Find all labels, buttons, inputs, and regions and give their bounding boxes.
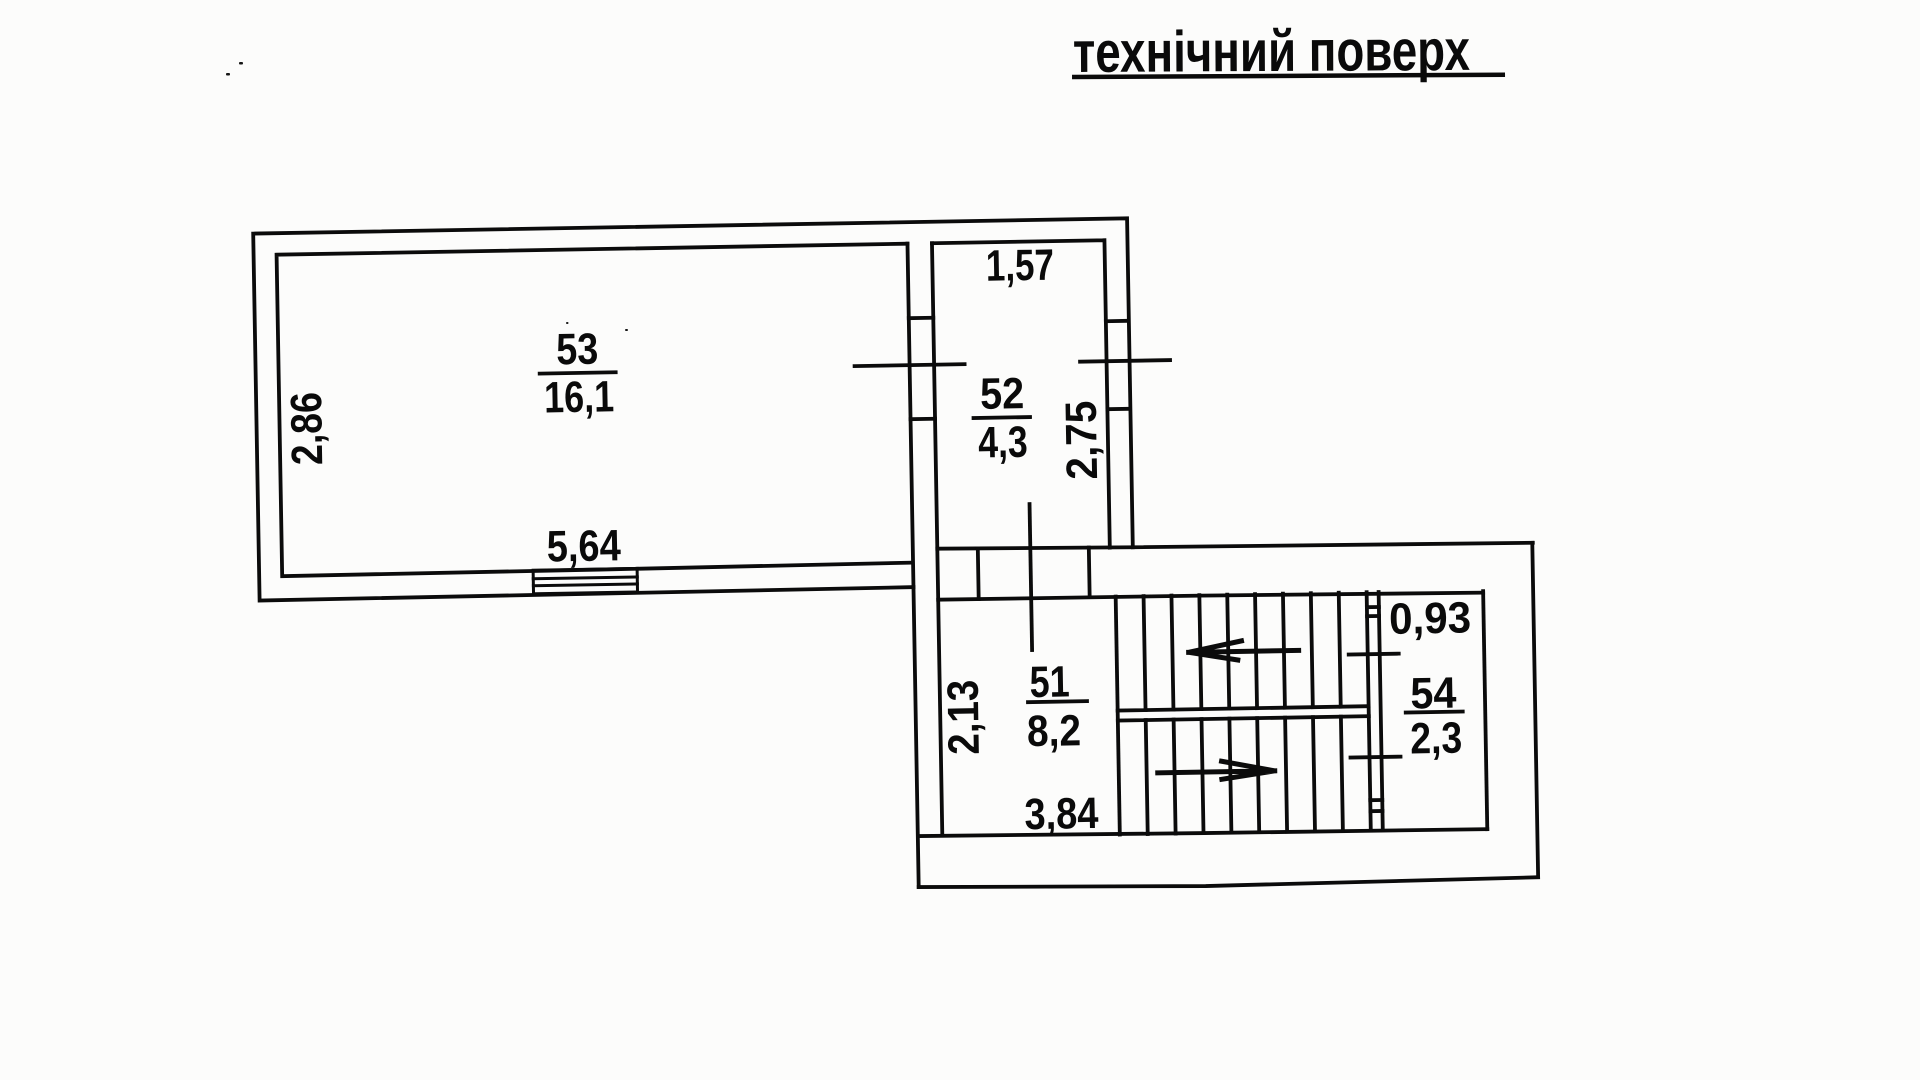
svg-text:5,64: 5,64 — [546, 521, 621, 571]
svg-text:3,84: 3,84 — [1024, 789, 1099, 839]
svg-text:1,57: 1,57 — [985, 241, 1054, 291]
svg-text:2,13: 2,13 — [939, 679, 989, 755]
svg-text:51: 51 — [1029, 657, 1070, 707]
svg-text:2,86: 2,86 — [282, 392, 332, 466]
svg-text:53: 53 — [556, 325, 599, 375]
svg-text:4,3: 4,3 — [978, 418, 1028, 468]
svg-text:8,2: 8,2 — [1027, 706, 1082, 756]
svg-text:16,1: 16,1 — [544, 372, 615, 422]
svg-text:54: 54 — [1410, 669, 1457, 719]
svg-text:52: 52 — [980, 369, 1025, 419]
svg-text:0,93: 0,93 — [1389, 593, 1472, 643]
svg-text:2,3: 2,3 — [1410, 714, 1463, 764]
svg-text:2,75: 2,75 — [1057, 400, 1107, 480]
